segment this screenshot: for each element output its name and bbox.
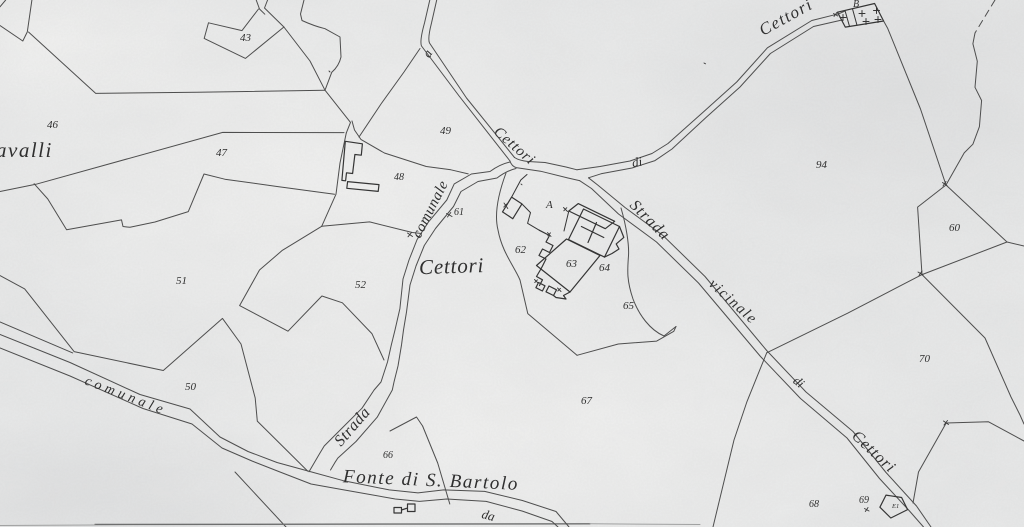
svg-text:B: B xyxy=(853,0,859,10)
svg-text:48: 48 xyxy=(394,172,404,183)
svg-text:47: 47 xyxy=(216,147,228,159)
svg-text:A: A xyxy=(545,199,553,211)
svg-text:65: 65 xyxy=(623,300,635,312)
svg-text:50: 50 xyxy=(185,381,197,393)
svg-text:46: 46 xyxy=(47,119,59,131)
svg-text:61: 61 xyxy=(454,207,464,218)
svg-text:67: 67 xyxy=(581,395,593,407)
svg-text:49: 49 xyxy=(440,125,452,137)
svg-text:51: 51 xyxy=(176,275,187,287)
svg-text:43: 43 xyxy=(240,32,252,44)
svg-text:69: 69 xyxy=(859,495,869,506)
svg-text:70: 70 xyxy=(919,353,931,365)
svg-text:Cettori: Cettori xyxy=(419,253,485,279)
svg-text:64: 64 xyxy=(599,262,611,274)
svg-text:avalli: avalli xyxy=(0,138,53,162)
svg-text:66: 66 xyxy=(383,450,393,461)
svg-text:62: 62 xyxy=(515,244,527,256)
svg-text:63: 63 xyxy=(566,258,578,270)
svg-text:E1: E1 xyxy=(891,503,899,510)
svg-text:52: 52 xyxy=(355,279,367,291)
svg-text:94: 94 xyxy=(816,159,828,171)
svg-text:68: 68 xyxy=(809,499,819,510)
svg-text:60: 60 xyxy=(949,222,961,234)
